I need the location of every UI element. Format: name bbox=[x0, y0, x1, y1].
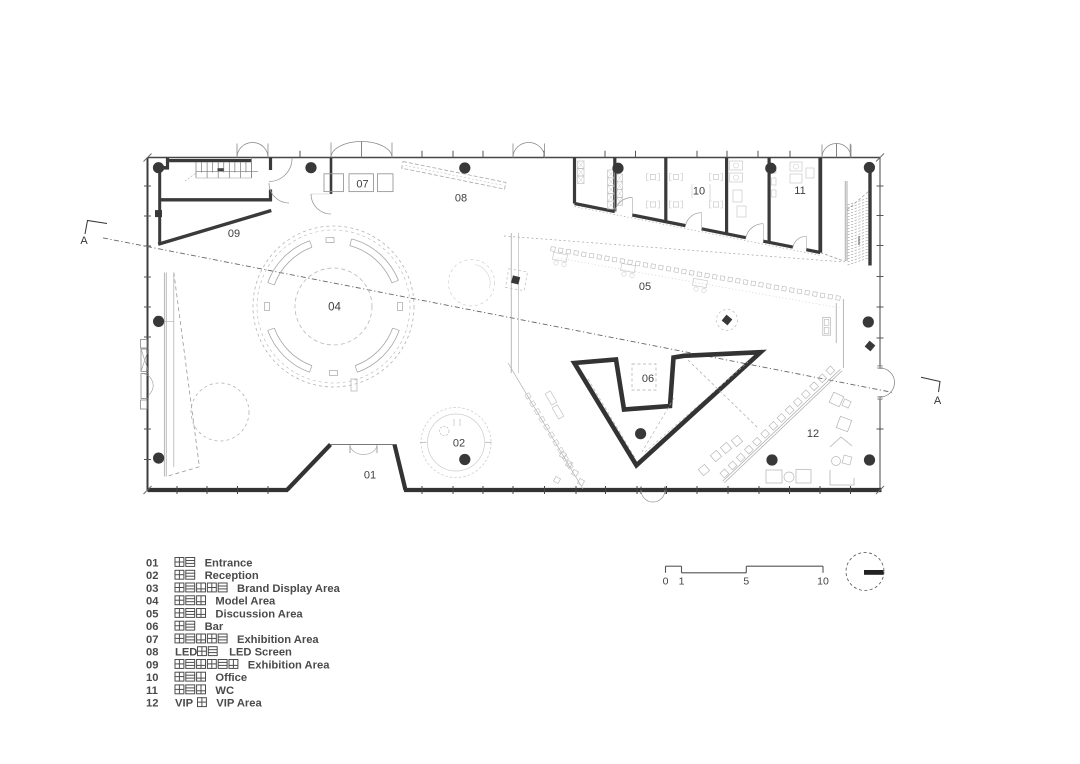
svg-text:06: 06 bbox=[642, 373, 654, 385]
svg-text:Model Area: Model Area bbox=[215, 596, 276, 608]
svg-text:10: 10 bbox=[817, 576, 829, 588]
svg-text:A: A bbox=[80, 235, 88, 247]
svg-text:5: 5 bbox=[743, 576, 749, 588]
svg-text:Entrance: Entrance bbox=[205, 557, 253, 569]
svg-text:Bar: Bar bbox=[205, 621, 224, 633]
svg-text:01: 01 bbox=[146, 557, 158, 569]
svg-text:Exhibition Area: Exhibition Area bbox=[248, 659, 330, 671]
svg-text:02: 02 bbox=[453, 438, 465, 450]
svg-text:LED: LED bbox=[175, 647, 197, 659]
svg-text:Discussion Area: Discussion Area bbox=[215, 608, 303, 620]
svg-text:VIP Area: VIP Area bbox=[216, 698, 262, 710]
svg-text:01: 01 bbox=[364, 470, 376, 482]
svg-text:05: 05 bbox=[639, 281, 651, 293]
svg-text:09: 09 bbox=[146, 659, 158, 671]
svg-text:02: 02 bbox=[146, 570, 158, 582]
svg-text:03: 03 bbox=[146, 583, 158, 595]
svg-text:07: 07 bbox=[356, 179, 368, 191]
svg-text:10: 10 bbox=[146, 672, 158, 684]
svg-text:09: 09 bbox=[228, 228, 240, 240]
svg-text:A: A bbox=[934, 395, 942, 407]
svg-text:VIP: VIP bbox=[175, 698, 194, 710]
svg-text:Exhibition Area: Exhibition Area bbox=[237, 634, 319, 646]
svg-text:LED Screen: LED Screen bbox=[229, 647, 292, 659]
svg-text:Reception: Reception bbox=[205, 570, 259, 582]
svg-text:Brand Display Area: Brand Display Area bbox=[237, 583, 341, 595]
svg-text:12: 12 bbox=[146, 698, 158, 710]
svg-text:04: 04 bbox=[328, 302, 341, 314]
svg-text:11: 11 bbox=[146, 685, 158, 697]
svg-text:05: 05 bbox=[146, 608, 158, 620]
svg-text:11: 11 bbox=[794, 185, 805, 197]
svg-text:07: 07 bbox=[146, 634, 158, 646]
svg-text:1: 1 bbox=[679, 576, 685, 588]
svg-text:08: 08 bbox=[455, 193, 467, 205]
svg-text:0: 0 bbox=[663, 576, 669, 588]
svg-text:WC: WC bbox=[215, 685, 234, 697]
svg-text:08: 08 bbox=[146, 647, 158, 659]
svg-text:06: 06 bbox=[146, 621, 158, 633]
svg-text:04: 04 bbox=[146, 596, 159, 608]
svg-text:Office: Office bbox=[215, 672, 247, 684]
svg-text:12: 12 bbox=[807, 428, 819, 440]
svg-text:10: 10 bbox=[693, 186, 705, 198]
